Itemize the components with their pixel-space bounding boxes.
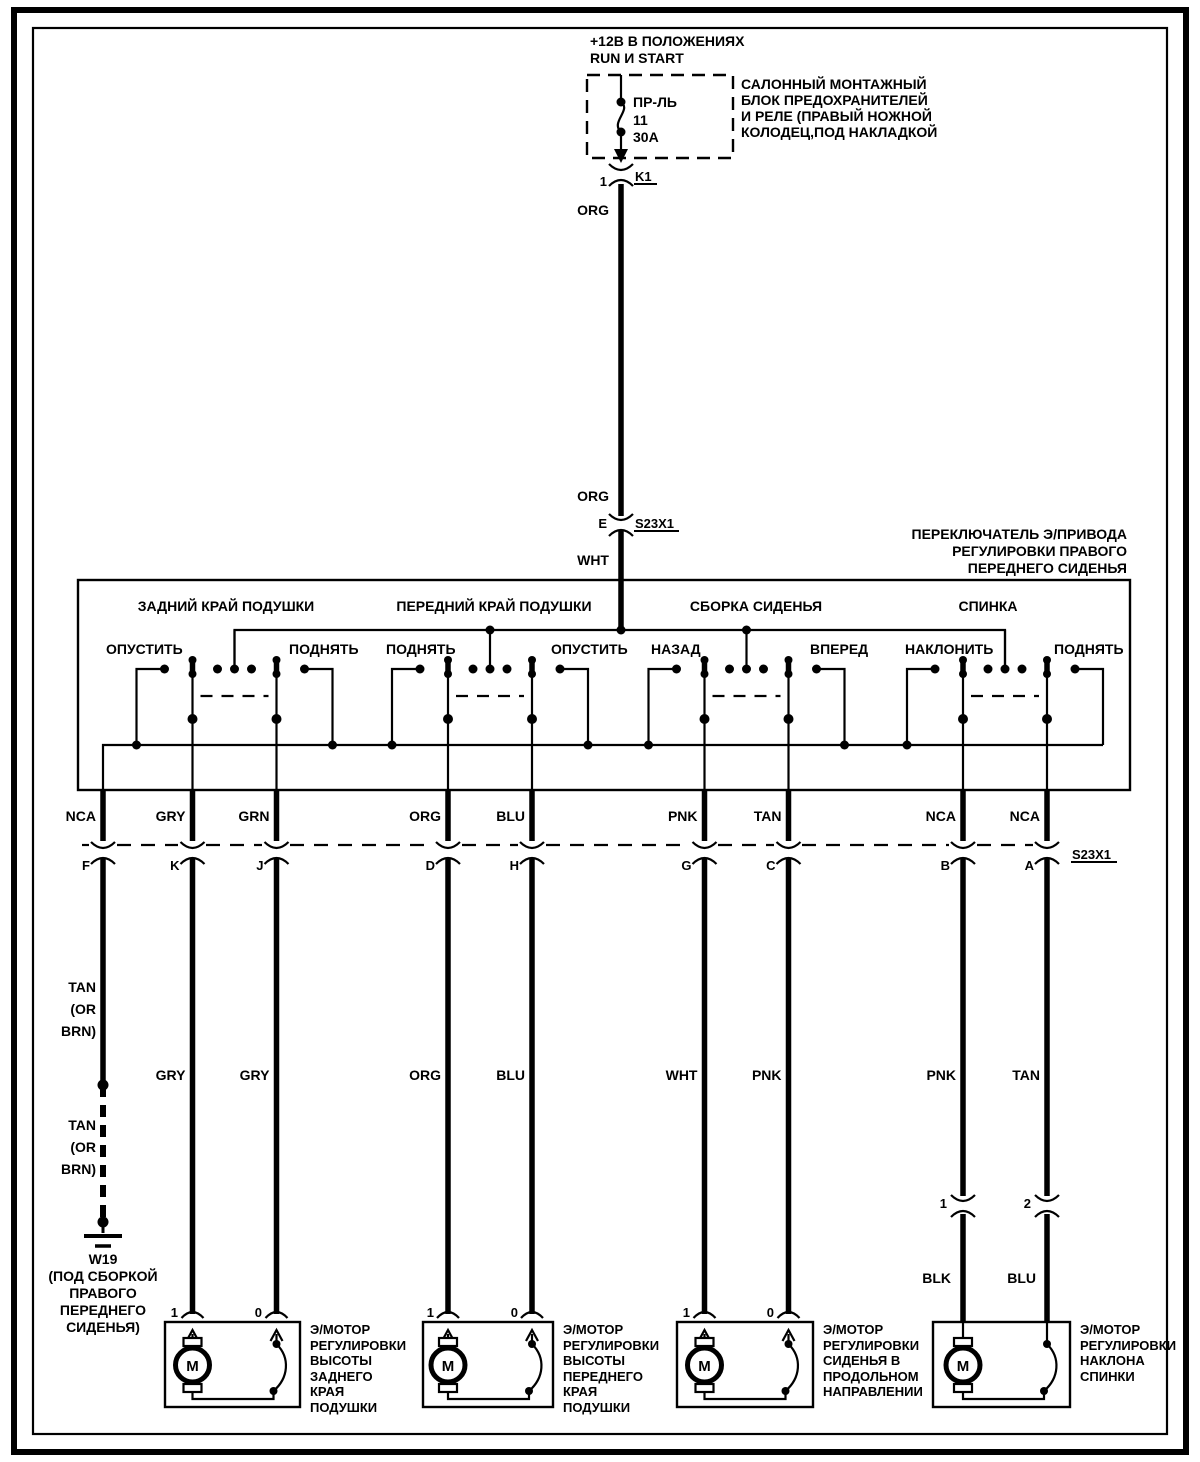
ground-note-line3: ПЕРЕДНЕГО [60,1302,146,1318]
motor-icon: M [176,1338,210,1392]
wire-color-above-f: NCA [66,808,96,824]
wire-columns: NCA GRY GRN ORG BLU PNK TAN NCA NCA [66,790,1047,841]
wire-color-blk: BLK [922,1270,951,1286]
section-title-backrest: СПИНКА [958,598,1017,614]
wire-color-above-h: BLU [496,808,525,824]
wire-color-below-c: PNK [752,1067,782,1083]
seat-connector-pin-2: 2 [1024,1196,1031,1211]
power-seat-wiring-diagram: +12В В ПОЛОЖЕНИЯХ RUN И START ПР-ЛЬ 11 3… [0,0,1200,1462]
wire-color-above-a: NCA [1010,808,1040,824]
section-title-rear-cushion: ЗАДНИЙ КРАЙ ПОДУШКИ [138,597,315,614]
seat-inline-connectors: 1 2 BLK BLU [922,1195,1059,1286]
wire-color-above-b: NCA [926,808,956,824]
power-feed-line1: +12В В ПОЛОЖЕНИЯХ [590,33,745,49]
seat-connector-pin-1: 1 [940,1196,947,1211]
switch-title-line3: ПЕРЕДНЕГО СИДЕНЬЯ [968,560,1127,576]
ground-note-line2: ПРАВОГО [69,1285,137,1301]
breaker-icon [525,1340,541,1395]
relay-output-connector: 1 K1 [600,164,657,189]
connector-icon-seat-2 [1035,1195,1059,1217]
wire-color-below-d: ORG [409,1067,441,1083]
motor1-label-line2: РЕГУЛИРОВКИ [310,1338,406,1353]
connector-icon-seat-1 [951,1195,975,1217]
motor3-pin-left: 1 [683,1305,690,1320]
motor-seat-track: 1 0 M Э/МОТОР РЕГУЛИРОВКИ СИДЕНЬЯ В ПРОД… [677,1305,923,1407]
power-feed-label: +12В В ПОЛОЖЕНИЯХ RUN И START [590,33,745,66]
power-feed-line2: RUN И START [590,50,684,66]
ground-icon [84,1217,122,1247]
section-title-front-cushion: ПЕРЕДНИЙ КРАЙ ПОДУШКИ [396,597,591,614]
motor4-label-line4: СПИНКИ [1080,1369,1135,1384]
motor2-label-line5: КРАЯ [563,1384,597,1399]
wires-to-motors: GRY GRY ORG BLU WHT PNK PNK TAN [103,859,1047,1322]
supply-wire: ORG ORG E S23X1 WHT [577,184,679,630]
motor1-label-line1: Э/МОТОР [310,1322,371,1337]
motor3-label-line2: РЕГУЛИРОВКИ [823,1338,919,1353]
pin-letter-b: B [941,858,950,873]
breaker-icon [782,1340,798,1395]
pin-letter-h: H [510,858,519,873]
ground-wire-color-lower-3: BRN) [61,1161,96,1177]
motor-icon: M [431,1338,465,1392]
motor1-pin-left: 1 [171,1305,178,1320]
wire-color-above-c: TAN [754,808,782,824]
ground-note-line1: (ПОД СБОРКОЙ [48,1267,157,1284]
motor4-label-line1: Э/МОТОР [1080,1322,1141,1337]
motor2-symbol: M [442,1358,455,1375]
motor2-label-line6: ПОДУШКИ [563,1400,630,1415]
wire-color-below-j: GRY [240,1067,270,1083]
fuse-box-note-line3: И РЕЛЕ (ПРАВЫЙ НОЖНОЙ [741,107,932,124]
pin-letter-f: F [82,858,90,873]
motor-icon: M [688,1338,722,1392]
ground-wire-color-upper-2: (OR [70,1001,96,1017]
motor1-label-line4: ЗАДНЕГО [310,1369,373,1384]
wire-color-above-g: PNK [668,808,698,824]
motor1-pin-right: 0 [255,1305,262,1320]
ground-wire-color-lower-1: TAN [68,1117,96,1133]
motor3-label-line4: ПРОДОЛЬНОМ [823,1369,919,1384]
label-backrest-raise: ПОДНЯТЬ [1054,641,1124,657]
label-rear-raise: ПОДНЯТЬ [289,641,359,657]
motor-front-cushion-height: 1 0 M Э/МОТОР РЕГУЛИРОВКИ ВЫСОТЫ ПЕРЕДНЕ… [423,1305,659,1415]
fuse-rating: 30А [633,129,659,145]
fuse-abbr: ПР-ЛЬ [633,94,677,110]
pin-letter-j: J [256,858,263,873]
motor3-symbol: M [698,1358,711,1375]
connector-icon-k1 [609,164,633,186]
wire-color-org-top: ORG [577,202,609,218]
wire-color-above-k: GRY [156,808,186,824]
section-title-seat-assembly: СБОРКА СИДЕНЬЯ [690,598,822,614]
relay-label: K1 [635,169,652,184]
label-rear-lower: ОПУСТИТЬ [106,641,183,657]
motor3-label-line3: СИДЕНЬЯ В [823,1353,900,1368]
ground-id: W19 [89,1251,118,1267]
fuse-box-note-line1: САЛОННЫЙ МОНТАЖНЫЙ [741,75,927,92]
wire-color-below-b: PNK [926,1067,956,1083]
fuse-box-note-line4: КОЛОДЕЦ,ПОД НАКЛАДКОЙ [741,123,937,140]
ground-wire-color-upper-3: BRN) [61,1023,96,1039]
motor1-label-line5: КРАЯ [310,1384,344,1399]
fuse-box-note-line2: БЛОК ПРЕДОХРАНИТЕЛЕЙ [741,91,928,108]
fuse-box-outline [587,75,733,158]
motor3-label-line1: Э/МОТОР [823,1322,884,1337]
motor2-label-line2: РЕГУЛИРОВКИ [563,1338,659,1353]
ground-wire-color-lower-2: (OR [70,1139,96,1155]
motor4-label-line3: НАКЛОНА [1080,1353,1145,1368]
label-backrest-tilt: НАКЛОНИТЬ [905,641,993,657]
breaker-icon [270,1340,286,1395]
wire-color-below-h: BLU [496,1067,525,1083]
wire-color-org-mid: ORG [577,488,609,504]
motor2-pin-left: 1 [427,1305,434,1320]
splice-pin-e: E [598,516,607,531]
pin-letter-d: D [426,858,435,873]
label-front-raise: ПОДНЯТЬ [386,641,456,657]
wire-color-above-d: ORG [409,808,441,824]
motor4-symbol: M [957,1358,970,1375]
pin-letter-a: A [1025,858,1035,873]
wire-color-wht: WHT [577,552,609,568]
motor1-label-line3: ВЫСОТЫ [310,1353,372,1368]
wire-color-above-j: GRN [238,808,269,824]
switch-title-line2: РЕГУЛИРОВКИ ПРАВОГО [952,543,1127,559]
label-assembly-back: НАЗАД [651,641,701,657]
wire-color-below-k: GRY [156,1067,186,1083]
wire-color-blu-lower: BLU [1007,1270,1036,1286]
motor-rear-cushion-height: 1 0 M Э/МОТОР РЕГУЛИРОВКИ ВЫСОТЫ ЗАДНЕГО… [165,1305,406,1415]
wiring-diagram-page: +12В В ПОЛОЖЕНИЯХ RUN И START ПР-ЛЬ 11 3… [0,0,1200,1462]
fuse-relay-box: ПР-ЛЬ 11 30А САЛОННЫЙ МОНТАЖНЫЙ БЛОК ПРЕ… [587,75,937,163]
motor1-symbol: M [186,1358,199,1375]
ground-wire-color-upper-1: TAN [68,979,96,995]
relay-pin-number: 1 [600,174,607,189]
motor-backrest-recline: M Э/МОТОР РЕГУЛИРОВКИ НАКЛОНА СПИНКИ [933,1322,1176,1407]
switch-common-bus [103,745,1103,790]
pin-letter-g: G [681,858,691,873]
motor4-label-line2: РЕГУЛИРОВКИ [1080,1338,1176,1353]
pin-letter-k: K [170,858,180,873]
label-front-lower: ОПУСТИТЬ [551,641,628,657]
breaker-icon [1040,1340,1056,1395]
pin-letter-c: C [766,858,776,873]
motor-icon: M [946,1338,980,1392]
motor3-pin-right: 0 [767,1305,774,1320]
motor2-label-line3: ВЫСОТЫ [563,1353,625,1368]
motor1-label-line6: ПОДУШКИ [310,1400,377,1415]
ground-note-line4: СИДЕНЬЯ) [66,1319,140,1335]
wire-color-below-a: TAN [1012,1067,1040,1083]
motor3-label-line5: НАПРАВЛЕНИИ [823,1384,923,1399]
motor2-label-line1: Э/МОТОР [563,1322,624,1337]
wire-color-below-g: WHT [666,1067,698,1083]
switch-title-line1: ПЕРЕКЛЮЧАТЕЛЬ Э/ПРИВОДА [912,526,1127,542]
motor2-pin-right: 0 [511,1305,518,1320]
label-assembly-forward: ВПЕРЕД [810,641,868,657]
arrow-down-icon [614,149,628,163]
splice-label-s23x1: S23X1 [635,516,674,531]
motor2-label-line4: ПЕРЕДНЕГО [563,1369,643,1384]
fuse-number: 11 [633,112,648,128]
connector-row-label: S23X1 [1072,847,1111,862]
